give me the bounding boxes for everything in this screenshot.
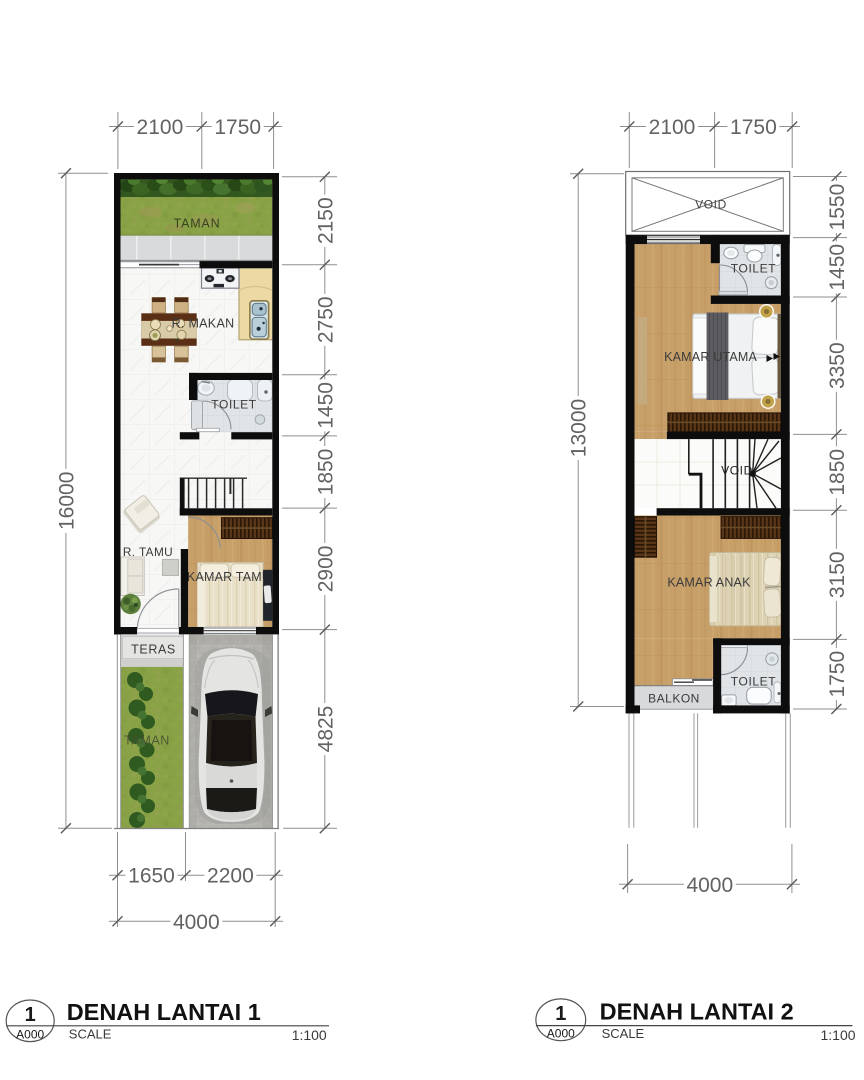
svg-text:1750: 1750 [214,116,261,139]
svg-text:A000: A000 [16,1028,44,1042]
svg-text:1:100: 1:100 [292,1027,327,1043]
svg-text:1550: 1550 [826,184,849,231]
svg-text:4000: 4000 [686,874,733,897]
svg-text:SCALE: SCALE [69,1027,112,1042]
svg-text:TOILET: TOILET [211,398,256,412]
svg-text:TAMAN: TAMAN [124,734,170,748]
svg-text:1850: 1850 [826,449,849,496]
svg-text:KAMAR ANAK: KAMAR ANAK [667,576,751,590]
svg-text:2100: 2100 [137,116,184,139]
svg-text:2750: 2750 [314,296,337,343]
svg-text:4825: 4825 [314,706,337,753]
svg-text:VOID: VOID [695,198,727,212]
svg-text:TOILET: TOILET [731,262,776,276]
svg-text:2200: 2200 [207,865,254,888]
svg-text:1650: 1650 [128,865,175,888]
svg-text:TERAS: TERAS [131,643,176,657]
svg-text:DENAH LANTAI 2: DENAH LANTAI 2 [600,999,794,1025]
svg-text:3350: 3350 [826,342,849,389]
svg-text:1750: 1750 [826,651,849,698]
svg-text:1450: 1450 [314,382,337,429]
svg-text:3150: 3150 [826,551,849,598]
svg-text:2900: 2900 [314,546,337,593]
svg-text:2100: 2100 [649,116,696,139]
svg-text:2150: 2150 [314,197,337,244]
svg-text:1:100: 1:100 [821,1027,856,1043]
svg-text:SCALE: SCALE [602,1026,645,1041]
svg-text:4000: 4000 [173,911,220,934]
svg-text:1750: 1750 [730,116,777,139]
svg-text:13000: 13000 [568,399,591,457]
svg-text:R. TAMU: R. TAMU [123,545,173,559]
svg-text:KAMAR TAMU: KAMAR TAMU [187,570,271,584]
svg-text:BALKON: BALKON [648,692,700,706]
svg-text:TOILET: TOILET [731,675,776,689]
svg-text:1450: 1450 [826,244,849,291]
svg-text:1: 1 [555,1003,566,1025]
svg-text:A000: A000 [547,1027,575,1041]
svg-text:DENAH LANTAI 1: DENAH LANTAI 1 [67,999,261,1025]
svg-text:16000: 16000 [55,472,78,530]
svg-text:1850: 1850 [314,449,337,496]
svg-text:1: 1 [25,1004,36,1026]
svg-text:R. MAKAN: R. MAKAN [172,317,235,331]
svg-text:VOID: VOID [721,464,753,478]
svg-text:TAMAN: TAMAN [174,217,221,231]
svg-text:KAMAR UTAMA: KAMAR UTAMA [664,350,757,364]
